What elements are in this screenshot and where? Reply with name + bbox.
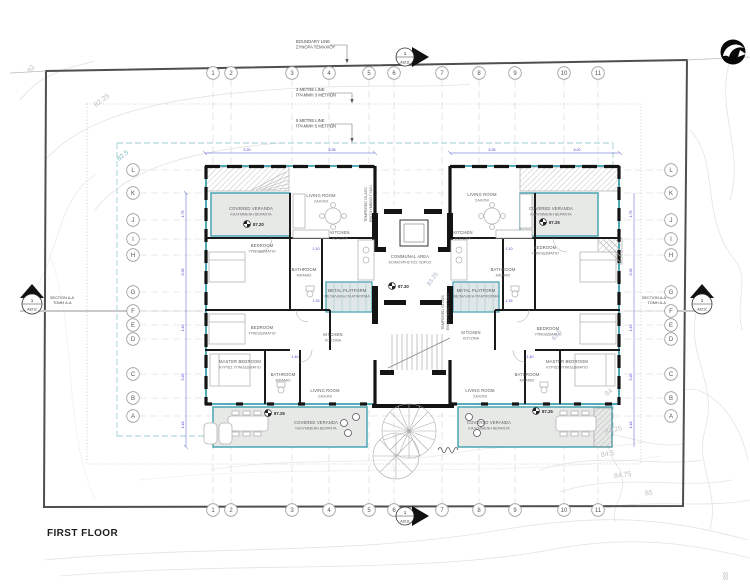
room-label: METAL PLATFORM	[457, 288, 496, 293]
svg-text:E: E	[131, 323, 135, 329]
drawing-title: FIRST FLOOR	[47, 528, 118, 539]
svg-text:F: F	[131, 309, 135, 315]
svg-text:F: F	[669, 309, 673, 315]
svg-text:ΕΝΙΣΧΥΜΕΝΟ ΓΥΑΛΙ: ΕΝΙΣΧΥΜΕΝΟ ΓΥΑΛΙ	[446, 293, 450, 330]
svg-text:ΥΠΝΟΔΩΜΑΤΙΟ: ΥΠΝΟΔΩΜΑΤΙΟ	[248, 250, 275, 254]
dim-text: 1.48	[629, 422, 633, 429]
contour-label: 84.5	[600, 450, 615, 459]
svg-text:ΚΟΙΝΟΧΡΗΣΤΟΣ ΧΩΡΟΣ: ΚΟΙΝΟΧΡΗΣΤΟΣ ΧΩΡΟΣ	[389, 261, 433, 265]
bed	[580, 252, 616, 282]
dim-text: 5.20	[574, 148, 581, 152]
svg-text:B: B	[669, 396, 673, 402]
toilet	[541, 387, 547, 393]
svg-text:A3212: A3212	[697, 308, 707, 312]
svg-text:10: 10	[561, 71, 568, 77]
svg-text:ΜΠΑΝΙΟ: ΜΠΑΝΙΟ	[276, 379, 291, 383]
round-table	[325, 208, 341, 224]
dim-text: 5.20	[181, 374, 185, 381]
stool	[341, 420, 348, 427]
dim-text: 1.40	[181, 325, 185, 332]
svg-text:K: K	[131, 191, 135, 197]
svg-text:H: H	[669, 253, 673, 259]
svg-text:ΣΑΛΟΝΙ: ΣΑΛΟΝΙ	[473, 395, 487, 399]
dining-table	[228, 416, 268, 431]
svg-text:ΣΑΛΟΝΙ: ΣΑΛΟΝΙ	[314, 200, 328, 204]
dim-text: 5.20	[629, 374, 633, 381]
pergola-hatch-tl	[206, 167, 289, 191]
svg-text:ΥΠΝΟΔΩΜΑΤΙΟ: ΥΠΝΟΔΩΜΑΤΙΟ	[531, 252, 558, 256]
level-value: 87.20	[253, 222, 264, 227]
room-label: LIVING ROOM	[310, 388, 340, 393]
svg-text:ΚΟΥΖΙΝΑ: ΚΟΥΖΙΝΑ	[463, 337, 479, 341]
room-label: COVERED VERANDA	[467, 420, 511, 425]
svg-text:A3212: A3212	[27, 308, 37, 312]
bed	[209, 314, 245, 344]
svg-text:A: A	[669, 414, 673, 420]
svg-text:A3211: A3211	[400, 61, 410, 65]
contour-label: 82.5	[116, 149, 130, 163]
svg-text:J: J	[132, 218, 135, 224]
section-label: SECTION A-A	[50, 296, 75, 300]
toilet	[307, 291, 313, 297]
tempered-glass-note: TEMPERED GLASS	[364, 187, 368, 222]
room-label: LIVING ROOM	[306, 193, 336, 198]
level-value: 87.30	[398, 284, 409, 289]
room-label: COVERED VERANDA	[229, 206, 273, 211]
dim-text: 1.40	[292, 355, 299, 359]
svg-text:ΜΠΑΝΙΟ: ΜΠΑΝΙΟ	[520, 379, 535, 383]
svg-text:ΜΠΑΝΙΟ: ΜΠΑΝΙΟ	[496, 274, 511, 278]
svg-text:ΚΥΡΙΩΣ ΥΠΝΟΔΩΜΑΤΙΟ: ΚΥΡΙΩΣ ΥΠΝΟΔΩΜΑΤΙΟ	[546, 366, 588, 370]
level-value: 87.25	[274, 411, 285, 416]
svg-text:ΚΟΥΖΙΝΑ: ΚΟΥΖΙΝΑ	[455, 237, 471, 241]
room-label: COMMUNAL AREA	[391, 254, 429, 259]
section-label: SECTION A-A	[642, 296, 667, 300]
contour-label: 82.25	[93, 93, 111, 109]
section-marker-right: 1 A3212 SECTION A-A ΤΟΜΗ A-A	[642, 284, 714, 314]
level-value: 87.25	[542, 409, 553, 414]
svg-text:11: 11	[595, 71, 602, 77]
contour-label: 84.75	[614, 471, 632, 480]
dim-text: 1.75	[181, 211, 185, 218]
room-label: KITCHEN	[453, 230, 472, 235]
dim-text: 1.48	[181, 422, 185, 429]
room-label: BATHROOM	[292, 267, 317, 272]
svg-text:ΥΠΝΟΔΩΜΑΤΙΟ: ΥΠΝΟΔΩΜΑΤΙΟ	[248, 332, 275, 336]
svg-text:1: 1	[31, 298, 34, 303]
sofa	[496, 230, 532, 238]
room-label: METAL PLATFORM	[328, 288, 367, 293]
svg-text:ΜΕΤΑΛΛΙΚΗ ΠΛΑΤΦΟΡΜΑ: ΜΕΤΑΛΛΙΚΗ ΠΛΑΤΦΟΡΜΑ	[453, 295, 499, 299]
svg-text:K: K	[669, 191, 673, 197]
svg-text:H: H	[131, 253, 135, 259]
room-label: KITCHEN	[330, 230, 349, 235]
level-value: 87.25	[549, 220, 560, 225]
room-label: BEDROOM	[534, 245, 557, 250]
room-label: BATHROOM	[271, 372, 296, 377]
room-label: MASTER BEDROOM	[219, 359, 261, 364]
svg-text:ΚΑΛΥΜΜΕΝΗ ΒΕΡΑΝΤΑ: ΚΑΛΥΜΜΕΝΗ ΒΕΡΑΝΤΑ	[230, 213, 272, 217]
room-label: COVERED VERANDA	[529, 206, 573, 211]
contour-label: 82	[27, 64, 37, 74]
dim-text: 1.10	[313, 247, 320, 251]
svg-text:ΜΕΤΑΛΛΙΚΗ ΠΛΑΤΦΟΡΜΑ: ΜΕΤΑΛΛΙΚΗ ΠΛΑΤΦΟΡΜΑ	[324, 295, 370, 299]
dim-text: 1.15	[313, 299, 320, 303]
svg-text:1: 1	[404, 510, 407, 515]
stool	[353, 414, 360, 421]
room-label: KITCHEN	[323, 332, 342, 337]
room-label: BATHROOM	[491, 267, 516, 272]
section-marker-bottom: 1 A3211	[396, 506, 429, 526]
stool	[474, 430, 481, 437]
tempered-glass-note: TEMPERED GLASS	[441, 295, 445, 330]
floor-plan-svg: 1.75 5.35 1.40 5.20 1.48 1.75 5.35 1.40 …	[0, 0, 750, 586]
annotation-callouts: BOUNDARY LINE ΣΥΝΟΡΑ ΤΕΜΑΧΙΟΥ 3 METRE LI…	[296, 39, 354, 143]
dim-text: 5.35	[329, 148, 336, 152]
svg-text:ΤΟΜΗ A-A: ΤΟΜΗ A-A	[53, 301, 72, 305]
svg-text:1: 1	[404, 51, 407, 56]
bathtub	[219, 423, 232, 444]
floor-plan-sheet: 1.75 5.35 1.40 5.20 1.48 1.75 5.35 1.40 …	[0, 0, 750, 586]
sofa	[520, 194, 532, 228]
contour-label: 88	[723, 572, 730, 580]
room-label: COVERED VERANDA	[294, 420, 338, 425]
sofa	[293, 230, 329, 238]
stool	[345, 430, 352, 437]
svg-text:ΚΥΡΙΩΣ ΥΠΝΟΔΩΜΑΤΙΟ: ΚΥΡΙΩΣ ΥΠΝΟΔΩΜΑΤΙΟ	[219, 366, 261, 370]
svg-text:ΚΑΛΥΜΜΕΝΗ ΒΕΡΑΝΤΑ: ΚΑΛΥΜΜΕΝΗ ΒΕΡΑΝΤΑ	[468, 427, 510, 431]
boundary-label: BOUNDARY LINE	[296, 39, 330, 44]
svg-text:ΚΑΛΥΜΜΕΝΗ ΒΕΡΑΝΤΑ: ΚΑΛΥΜΜΕΝΗ ΒΕΡΑΝΤΑ	[530, 213, 572, 217]
svg-text:A: A	[131, 414, 135, 420]
dim-text: 1.15	[506, 299, 513, 303]
svg-text:J: J	[670, 218, 673, 224]
bathtub	[204, 423, 217, 444]
toilet	[512, 291, 518, 297]
dining-table	[556, 416, 596, 431]
svg-text:D: D	[669, 337, 674, 343]
bed	[209, 252, 245, 282]
room-label: KITCHEN	[461, 330, 480, 335]
room-label: LIVING ROOM	[465, 388, 495, 393]
svg-text:ΜΠΑΝΙΟ: ΜΠΑΝΙΟ	[297, 274, 312, 278]
room-label: BEDROOM	[251, 325, 274, 330]
room-label: LIVING ROOM	[467, 192, 497, 197]
pergola-hatch-tr	[520, 167, 619, 191]
dim-text: 1.40	[629, 325, 633, 332]
room-label: BEDROOM	[251, 243, 274, 248]
svg-text:1: 1	[701, 298, 704, 303]
sofa	[293, 194, 305, 228]
dim-text: 5.35	[489, 148, 496, 152]
svg-text:ΣΑΛΟΝΙ: ΣΑΛΟΝΙ	[318, 395, 332, 399]
bed	[580, 314, 616, 344]
toilet	[278, 387, 284, 393]
svg-text:ΣΑΛΟΝΙ: ΣΑΛΟΝΙ	[475, 199, 489, 203]
svg-text:11: 11	[595, 508, 602, 514]
svg-text:C: C	[131, 372, 136, 378]
svg-text:ΣΥΝΟΡΑ ΤΕΜΑΧΙΟΥ: ΣΥΝΟΡΑ ΤΕΜΑΧΙΟΥ	[296, 45, 336, 50]
svg-text:ΚΑΛΥΜΜΕΝΗ ΒΕΡΑΝΤΑ: ΚΑΛΥΜΜΕΝΗ ΒΕΡΑΝΤΑ	[295, 427, 337, 431]
dim-text: 5.35	[181, 269, 185, 276]
room-label: MASTER BEDROOM	[546, 359, 588, 364]
svg-text:G: G	[669, 290, 674, 296]
dim-text: 1.10	[506, 247, 513, 251]
room-label: BATHROOM	[515, 372, 540, 377]
svg-text:10: 10	[561, 508, 568, 514]
svg-text:E: E	[669, 323, 673, 329]
dim-text: 5.35	[629, 269, 633, 276]
svg-text:G: G	[131, 290, 136, 296]
contour-label: 85	[645, 490, 653, 498]
svg-text:ΤΟΜΗ A-A: ΤΟΜΗ A-A	[648, 301, 667, 305]
dim-text: 1.75	[629, 211, 633, 218]
round-table	[484, 208, 500, 224]
svg-text:ΕΝΙΣΧΥΜΕΝΟ ΓΥΑΛΙ: ΕΝΙΣΧΥΜΕΝΟ ΓΥΑΛΙ	[369, 185, 373, 222]
svg-text:C: C	[669, 372, 674, 378]
svg-text:A3211: A3211	[400, 520, 410, 524]
svg-text:D: D	[131, 337, 136, 343]
dim-text: 5.20	[244, 148, 251, 152]
svg-text:B: B	[131, 396, 135, 402]
section-marker-left: 1 A3212 SECTION A-A ΤΟΜΗ A-A	[20, 284, 75, 314]
firm-logo	[721, 40, 747, 65]
five-metre-label: 5 METRE LINE	[296, 118, 325, 123]
svg-text:ΚΟΥΖΙΝΑ: ΚΟΥΖΙΝΑ	[325, 339, 341, 343]
three-metre-label: 3 METRE LINE	[296, 87, 325, 92]
svg-text:ΚΟΥΖΙΝΑ: ΚΟΥΖΙΝΑ	[332, 237, 348, 241]
dim-text: 1.40	[527, 355, 534, 359]
